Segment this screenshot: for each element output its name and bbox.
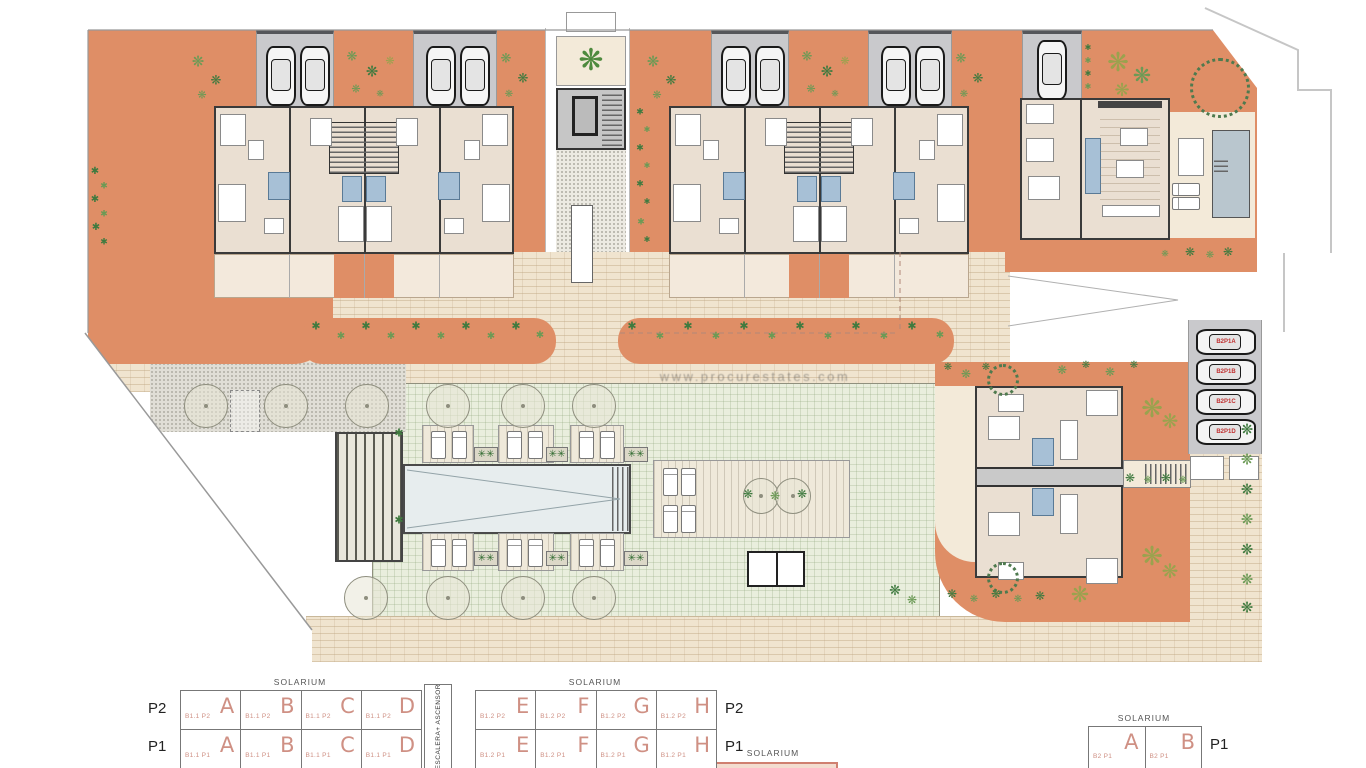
unit-code: B1.1 P2 (185, 713, 210, 720)
deck-planter: ✳✳ (474, 447, 498, 462)
unit-code: B1.1 P1 (306, 752, 331, 759)
furniture (937, 184, 965, 222)
building-stairs (784, 122, 854, 174)
furniture (1178, 138, 1204, 176)
unit-letter: A (220, 733, 234, 757)
furniture (218, 184, 246, 222)
legend-stair-elevator-box: ESCALERA+ ASCENSOR (424, 684, 452, 768)
deck-planter: ✳✳ (546, 447, 568, 462)
furniture (1086, 558, 1118, 584)
legend-unit-cell: B1.2 P1G (597, 730, 657, 768)
furniture (703, 140, 719, 160)
legend-unit-cell: B2 P1B (1146, 727, 1202, 768)
parking-space-label: B2P1B (1198, 361, 1254, 383)
tree (572, 576, 616, 620)
furniture (937, 114, 963, 146)
legend-unit-cell: B1.1 P1A (181, 730, 241, 768)
level-label: P2 (148, 700, 166, 717)
furniture (793, 206, 819, 242)
sunbed (681, 505, 696, 533)
garden-bed-2 (618, 318, 954, 364)
sunbed (431, 431, 446, 459)
furniture (366, 206, 392, 242)
legend-unit-cell: B1.2 P1E (476, 730, 536, 768)
parked-car (426, 46, 456, 106)
parked-car (300, 46, 330, 106)
furniture (851, 118, 873, 146)
furniture (719, 218, 739, 234)
legend-row: B1.1 P1AB1.1 P1BB1.1 P1CB1.1 P1D (181, 729, 421, 768)
legend-unit-cell: B2 P1A (1089, 727, 1146, 768)
tree (264, 384, 308, 428)
parked-car (721, 46, 751, 106)
unit-letter: H (694, 694, 710, 718)
unit-code: B1.1 P2 (245, 713, 270, 720)
solarium-label: SOLARIUM (1088, 713, 1200, 723)
furniture (444, 218, 464, 234)
unit-code: B2 P1 (1150, 753, 1169, 760)
b2-corridor (977, 467, 1123, 487)
stair-box-label: ESCALERA+ ASCENSOR (435, 684, 442, 768)
porch-divider (894, 254, 895, 298)
tree (743, 478, 779, 514)
sunbed (452, 431, 467, 459)
unit-code: B1.1 P2 (366, 713, 391, 720)
unit-letter: E (516, 694, 529, 718)
legend-row: B1.2 P2EB1.2 P2FB1.2 P2GB1.2 P2H (476, 691, 716, 729)
walkway-stairs (571, 205, 593, 283)
sunbed (600, 431, 615, 459)
legend-unit-cell: B1.2 P2F (536, 691, 596, 729)
pool-wc-block (747, 551, 805, 587)
sunbed (663, 468, 678, 496)
legend-unit-cell: B1.1 P2D (362, 691, 421, 729)
parked-car (755, 46, 785, 106)
parked-car: B2P1B (1196, 359, 1256, 385)
furniture (1026, 104, 1054, 124)
unit-code: B1.2 P1 (661, 752, 686, 759)
parking-bay-slot (0, 0, 72, 31)
parking-space-label: B2P1A (1198, 331, 1254, 353)
parked-car (1037, 40, 1067, 100)
furniture (899, 218, 919, 234)
bathroom (1032, 488, 1054, 516)
utility-box (1190, 456, 1224, 480)
pergola (335, 432, 403, 562)
deck-planter: ✳✳ (624, 447, 648, 462)
parking-space-label: B2P1D (1198, 421, 1254, 443)
level-label: P1 (1210, 736, 1228, 753)
porch-divider (439, 254, 440, 298)
unit-code: B1.2 P1 (480, 752, 505, 759)
sunbed (528, 431, 543, 459)
tree (572, 384, 616, 428)
legend-row: B1.1 P2AB1.1 P2BB1.1 P2CB1.1 P2D (181, 691, 421, 729)
porch-divider (744, 254, 745, 298)
sunbed (663, 505, 678, 533)
tree (184, 384, 228, 428)
legend-unit-cell: B1.1 P2B (241, 691, 301, 729)
deck-planter: ✳✳ (546, 551, 568, 566)
unit-code: B1.1 P2 (306, 713, 331, 720)
porch-divider (819, 254, 820, 298)
unit-code: B1.2 P1 (601, 752, 626, 759)
furniture (821, 206, 847, 242)
unit-code: B1.2 P2 (661, 713, 686, 720)
tree (501, 384, 545, 428)
unit-letter: F (577, 733, 589, 757)
b2-stairs (1145, 464, 1187, 484)
furniture (464, 140, 480, 160)
unit-letter: E (516, 733, 529, 757)
level-label: P1 (148, 738, 166, 755)
level-label: P2 (725, 700, 743, 717)
bathroom (1085, 138, 1101, 194)
bathroom (268, 172, 290, 200)
parked-car: B2P1C (1196, 389, 1256, 415)
furniture (675, 114, 701, 146)
legend-row: B1.2 P1EB1.2 P1FB1.2 P1GB1.2 P1H (476, 729, 716, 768)
unit-letter: D (399, 733, 415, 757)
gravel-legend-box (230, 390, 260, 432)
parked-car (266, 46, 296, 106)
unit-letter: G (633, 694, 649, 718)
core-stairs (602, 94, 622, 146)
level-label: P1 (725, 738, 743, 755)
legend-unit-cell: B1.1 P2C (302, 691, 362, 729)
plant-ring (987, 562, 1019, 594)
furniture (1102, 205, 1160, 217)
core-planter (556, 36, 626, 86)
legend-unit-cell: B1.1 P1D (362, 730, 421, 768)
core-top-bump (566, 12, 616, 32)
furniture (248, 140, 264, 160)
tree (426, 576, 470, 620)
sunbed (507, 539, 522, 567)
solarium-label: SOLARIUM (180, 677, 420, 687)
bathroom (821, 176, 841, 202)
legend-unit-cell: B1.1 P2A (181, 691, 241, 729)
villa-pool (1212, 130, 1250, 218)
parked-car: B2P1D (1196, 419, 1256, 445)
deck-planter: ✳✳ (474, 551, 498, 566)
villa-rug (1100, 112, 1160, 200)
tree (775, 478, 811, 514)
watermark: www.procurestates.com (545, 369, 965, 384)
bathroom (438, 172, 460, 200)
furniture (1120, 128, 1148, 146)
building-stairs (329, 122, 399, 174)
bathroom (1032, 438, 1054, 466)
site-plan-canvas: ❋ www.procurestates.com (0, 0, 1366, 768)
parking-bay-slot (0, 93, 72, 124)
furniture (988, 416, 1020, 440)
elevator-shaft (572, 96, 598, 136)
furniture (482, 114, 508, 146)
unit-code: B2 P1 (1093, 753, 1112, 760)
sunbed (507, 431, 522, 459)
furniture (482, 184, 510, 222)
furniture (1026, 138, 1054, 162)
porch-divider (289, 254, 290, 298)
sunbed (1172, 197, 1200, 210)
legend-unit-cell: B1.1 P1B (241, 730, 301, 768)
sunbed (452, 539, 467, 567)
furniture (1060, 494, 1078, 534)
villa-inner-wall (1080, 100, 1082, 238)
unit-letter: C (340, 733, 355, 757)
sunbed (1172, 183, 1200, 196)
bathroom (366, 176, 386, 202)
unit-letter: A (1124, 730, 1138, 754)
sunbed (579, 539, 594, 567)
legend-unit-cell: B1.2 P2E (476, 691, 536, 729)
furniture (338, 206, 364, 242)
furniture (998, 394, 1024, 412)
legend-unit-cell: B1.2 P1H (657, 730, 716, 768)
furniture (1116, 160, 1144, 178)
bathroom (342, 176, 362, 202)
parking-bay-slot (0, 31, 72, 62)
utility-box (1229, 456, 1259, 480)
furniture (264, 218, 284, 234)
furniture (1086, 390, 1118, 416)
unit-letter: F (577, 694, 589, 718)
legend-row: B2 P1AB2 P1B (1089, 727, 1201, 768)
legend-table-bottom-stub (712, 762, 838, 768)
unit-code: B1.1 P1 (185, 752, 210, 759)
unit-letter: B (280, 733, 294, 757)
garden-bed-1 (300, 318, 556, 364)
sunbed (431, 539, 446, 567)
tree (345, 384, 389, 428)
parking-bay-slot (0, 62, 72, 93)
furniture (673, 184, 701, 222)
swimming-pool (403, 464, 631, 534)
bathroom (797, 176, 817, 202)
furniture (1028, 176, 1060, 200)
villa-pool-steps (1214, 158, 1228, 172)
unit-code: B1.1 P1 (366, 752, 391, 759)
legend-unit-cell: B1.1 P1C (302, 730, 362, 768)
parking-space-label: B2P1C (1198, 391, 1254, 413)
sunbed (600, 539, 615, 567)
furniture (919, 140, 935, 160)
parked-car (915, 46, 945, 106)
tree (501, 576, 545, 620)
bathroom (893, 172, 915, 200)
legend-unit-cell: B1.2 P2G (597, 691, 657, 729)
sunbed (579, 431, 594, 459)
unit-letter: H (694, 733, 710, 757)
legend-unit-cell: B1.2 P1F (536, 730, 596, 768)
parked-car (881, 46, 911, 106)
furniture (765, 118, 787, 146)
parked-car (460, 46, 490, 106)
unit-letter: B (280, 694, 294, 718)
legend-table-B2: B2 P1AB2 P1B (1088, 726, 1202, 768)
bathroom (723, 172, 745, 200)
unit-code: B1.2 P1 (540, 752, 565, 759)
furniture (988, 512, 1020, 536)
plant-ring (1190, 58, 1250, 118)
furniture (396, 118, 418, 146)
sunbed (528, 539, 543, 567)
villa-kitchen-bar (1098, 101, 1162, 108)
unit-code: B1.2 P2 (601, 713, 626, 720)
unit-letter: B (1181, 730, 1195, 754)
furniture (220, 114, 246, 146)
tree (426, 384, 470, 428)
b2-west-walk (935, 386, 975, 562)
deck-planter: ✳✳ (624, 551, 648, 566)
legend-table-B1.2: B1.2 P2EB1.2 P2FB1.2 P2GB1.2 P2HB1.2 P1E… (475, 690, 717, 768)
unit-letter: A (220, 694, 234, 718)
pool-lane-steps (612, 467, 629, 531)
bottom-paving (306, 616, 1262, 662)
sunbed (681, 468, 696, 496)
solarium-label: SOLARIUM (475, 677, 715, 687)
parked-car: B2P1A (1196, 329, 1256, 355)
porch-divider (364, 254, 365, 298)
unit-code: B1.2 P2 (540, 713, 565, 720)
unit-code: B1.1 P1 (245, 752, 270, 759)
unit-letter: C (340, 694, 355, 718)
legend-unit-cell: B1.2 P2H (657, 691, 716, 729)
unit-letter: G (633, 733, 649, 757)
plant-ring (987, 364, 1019, 396)
furniture (310, 118, 332, 146)
legend-table-B1.1: B1.1 P2AB1.1 P2BB1.1 P2CB1.1 P2DB1.1 P1A… (180, 690, 422, 768)
unit-letter: D (399, 694, 415, 718)
furniture (1060, 420, 1078, 460)
unit-code: B1.2 P2 (480, 713, 505, 720)
tree (344, 576, 388, 620)
